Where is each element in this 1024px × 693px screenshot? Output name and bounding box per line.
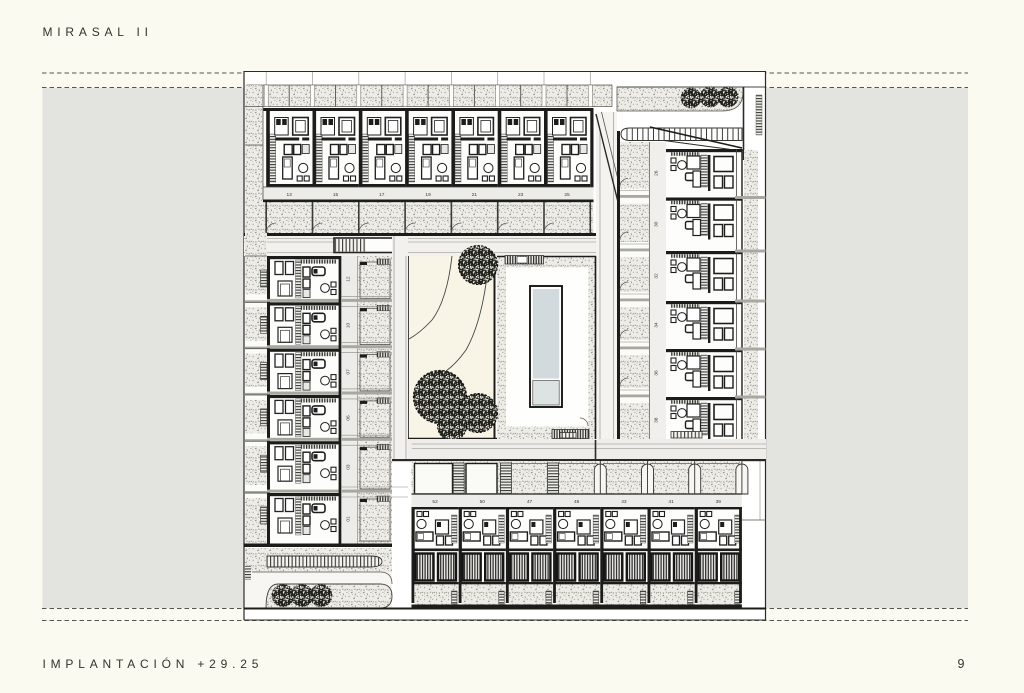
svg-text:13: 13 — [287, 192, 293, 198]
svg-text:25: 25 — [564, 192, 570, 198]
svg-text:01: 01 — [346, 516, 352, 522]
svg-text:52: 52 — [432, 499, 438, 505]
svg-text:47: 47 — [527, 499, 533, 505]
svg-text:50: 50 — [480, 499, 486, 505]
svg-text:32: 32 — [654, 273, 660, 279]
svg-text:07: 07 — [346, 369, 352, 375]
svg-text:03: 03 — [346, 464, 352, 470]
svg-text:19: 19 — [425, 192, 431, 198]
svg-text:26: 26 — [654, 170, 660, 176]
svg-text:34: 34 — [654, 322, 660, 328]
svg-text:9: 9 — [958, 657, 965, 671]
svg-text:15: 15 — [333, 192, 339, 198]
svg-text:36: 36 — [654, 370, 660, 376]
svg-text:46: 46 — [574, 499, 580, 505]
svg-text:23: 23 — [518, 192, 524, 198]
svg-text:30: 30 — [654, 221, 660, 227]
svg-text:38: 38 — [654, 417, 660, 423]
svg-text:17: 17 — [379, 192, 385, 198]
svg-text:41: 41 — [668, 499, 674, 505]
svg-text:MIRASAL II: MIRASAL II — [43, 25, 153, 39]
svg-text:IMPLANTACIÓN +29.25: IMPLANTACIÓN +29.25 — [43, 656, 264, 671]
svg-text:43: 43 — [621, 499, 627, 505]
svg-text:10: 10 — [346, 323, 352, 329]
svg-text:06: 06 — [346, 415, 352, 421]
svg-text:12: 12 — [346, 276, 352, 282]
svg-text:21: 21 — [472, 192, 478, 198]
svg-text:39: 39 — [716, 499, 722, 505]
